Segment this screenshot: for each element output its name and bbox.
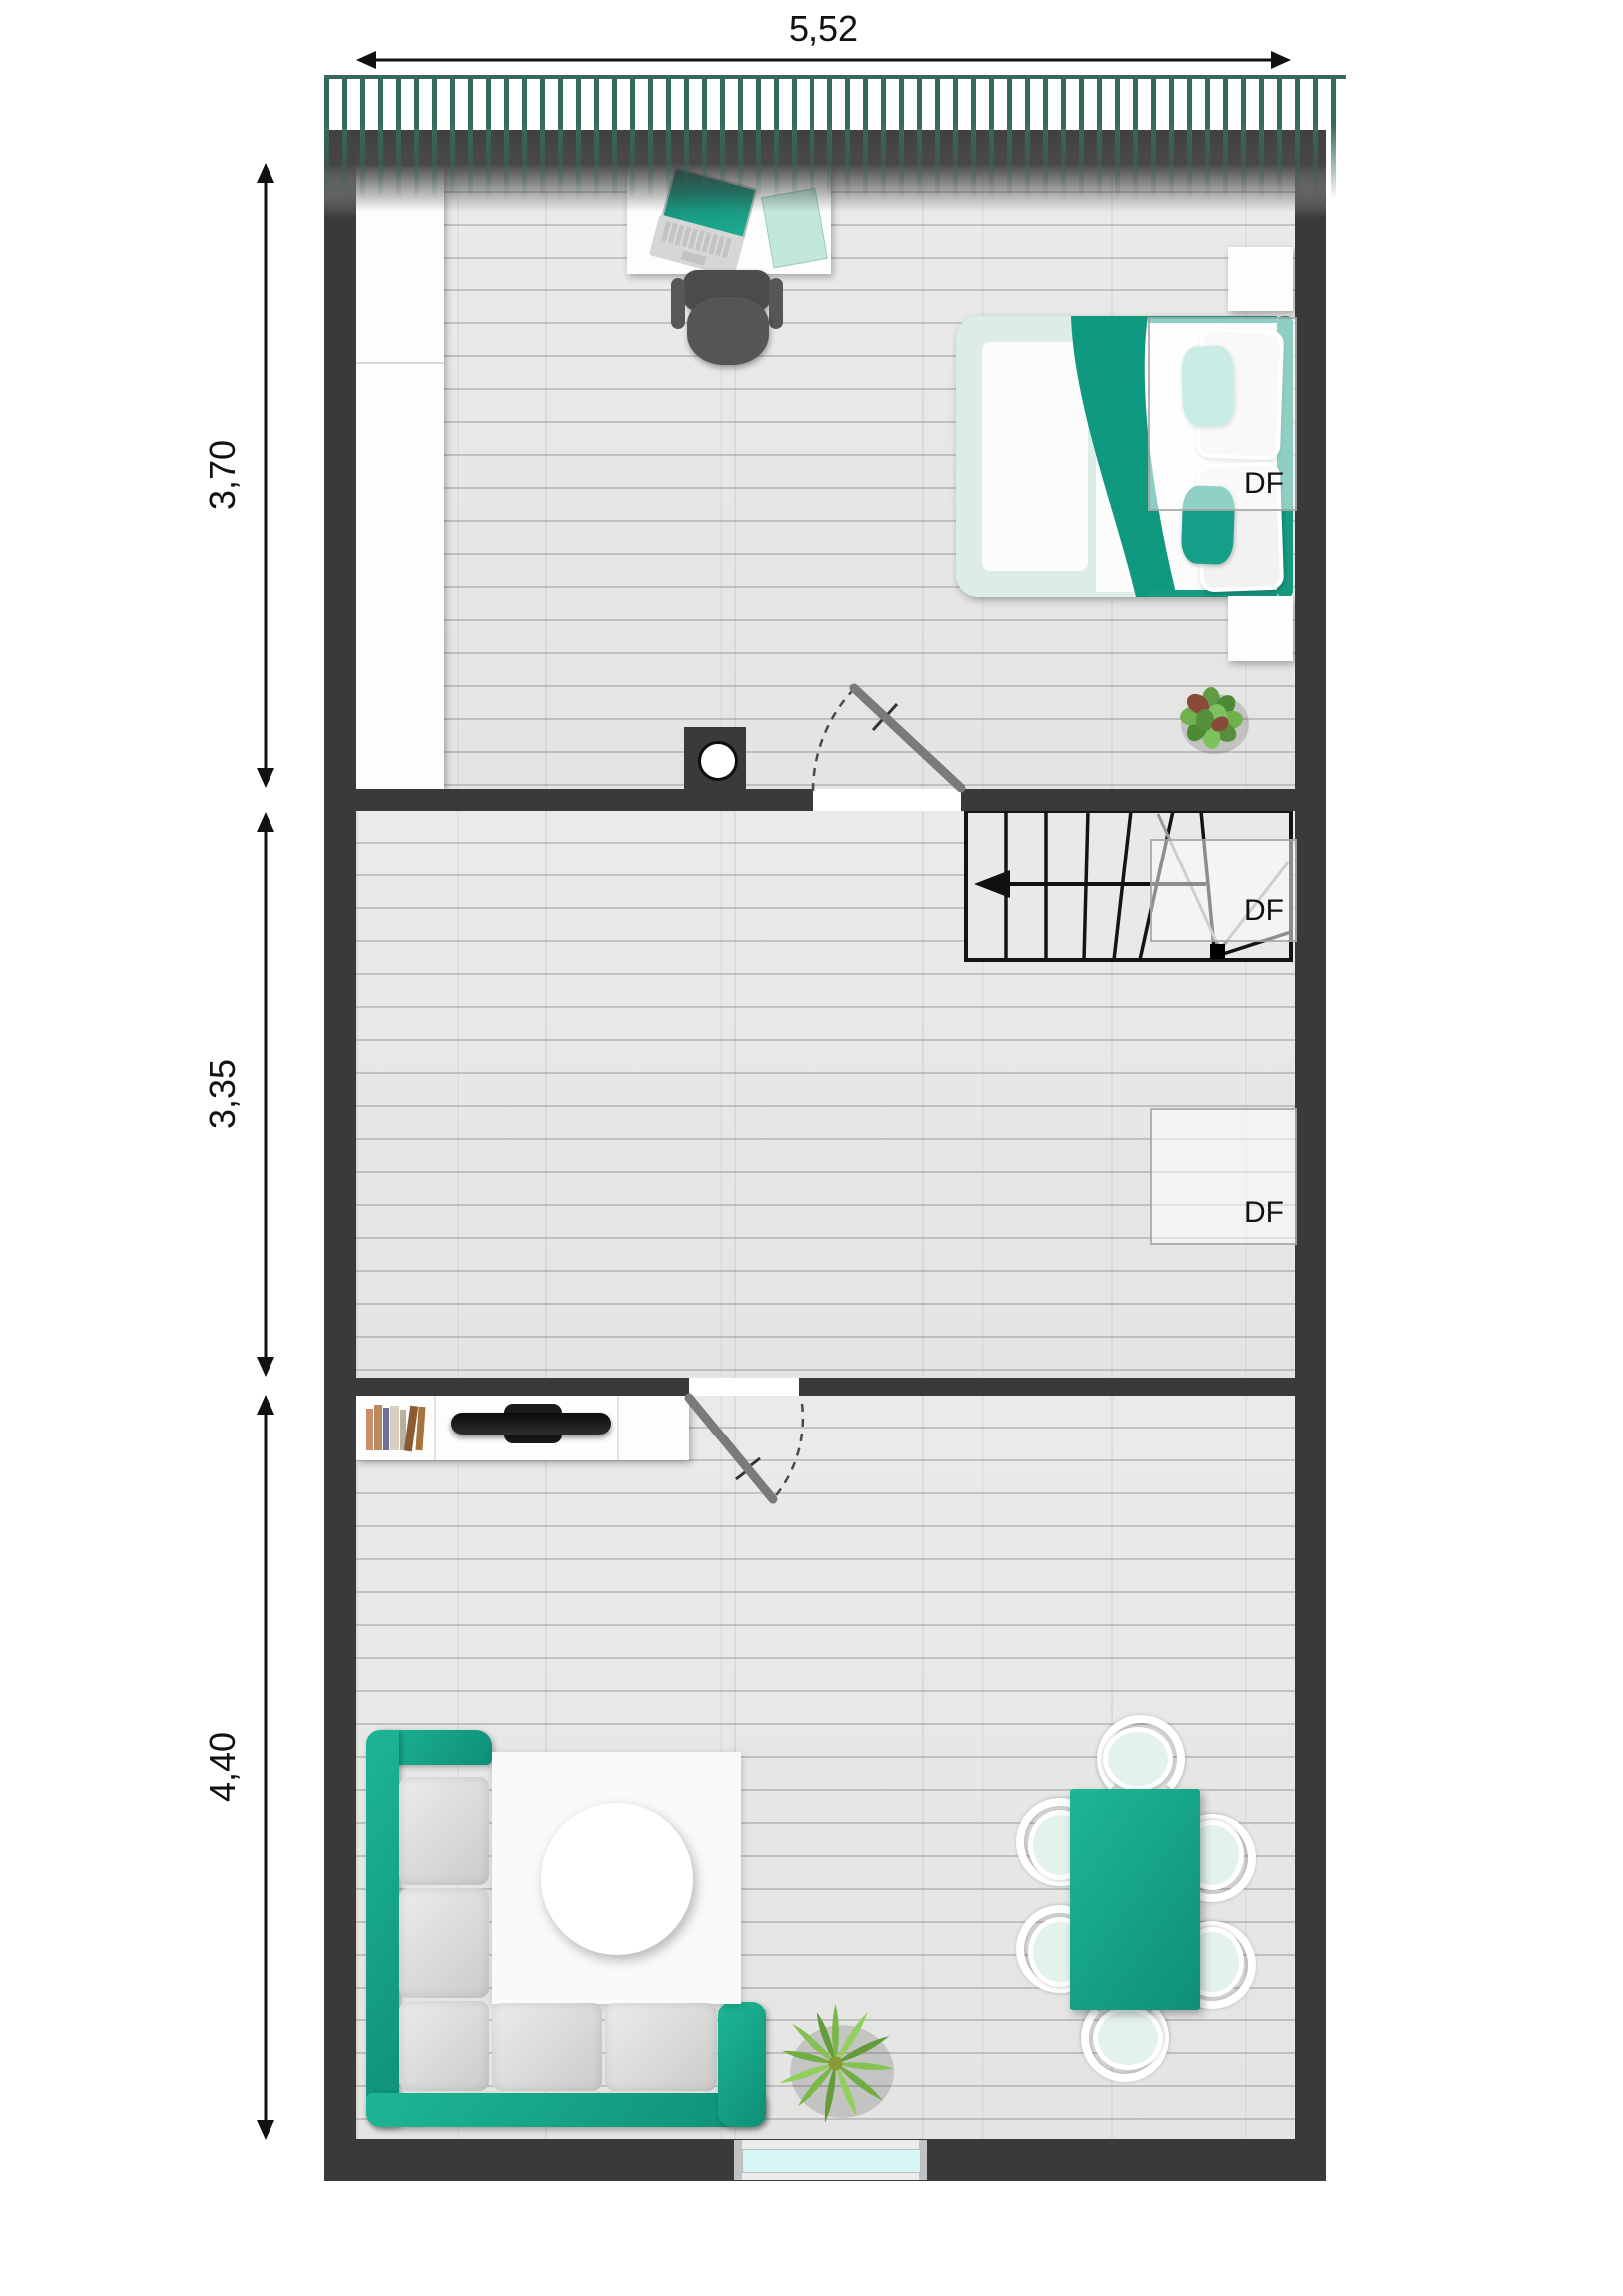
- wall-right: [1295, 140, 1326, 2181]
- dining-chair: [1089, 1711, 1177, 1799]
- nightstand-bottom: [1228, 596, 1293, 661]
- wardrobe: [356, 167, 444, 789]
- window-glass: [742, 2149, 921, 2173]
- office-chair: [671, 270, 783, 369]
- wall-bedroom-hall-right: [961, 789, 1295, 811]
- sideboard: [356, 1396, 689, 1460]
- window: [734, 2140, 927, 2180]
- chimney: [684, 727, 746, 789]
- sofa-front-bottom: [366, 2093, 766, 2127]
- nightstand-top: [1228, 247, 1293, 311]
- sofa-armrest-right: [718, 2002, 766, 2127]
- wardrobe-divider: [356, 362, 444, 364]
- tv-icon: [451, 1404, 616, 1451]
- dimension-bedroom-label: 3,70: [202, 415, 242, 535]
- sofa-cushion: [492, 2003, 602, 2091]
- wall-bedroom-hall-left: [356, 789, 813, 811]
- sofa-cushion: [605, 2003, 717, 2091]
- sofa-cushion: [399, 1777, 489, 1885]
- dining-table: [1070, 1789, 1200, 2010]
- roof-window-strip-edge: [324, 75, 1346, 79]
- skylight-label: DF: [1184, 894, 1284, 928]
- coffee-table: [541, 1803, 693, 1955]
- wall-left: [324, 140, 356, 2181]
- dimension-hall-label: 3,35: [202, 1034, 242, 1154]
- bed-sheet-left: [982, 342, 1088, 571]
- skylight-label: DF: [1184, 467, 1284, 501]
- books: [366, 1405, 428, 1452]
- dimension-living-room-label: 4,40: [202, 1707, 242, 1827]
- wall-hall-living-right: [799, 1378, 1295, 1396]
- dining-chair: [1089, 1999, 1177, 2086]
- chimney-flue: [698, 741, 738, 781]
- floor-plan: DF DF DF: [0, 0, 1623, 2296]
- sofa-back-left: [366, 1730, 399, 2127]
- skylight-label: DF: [1184, 1196, 1284, 1230]
- dimension-width-label: 5,52: [724, 8, 923, 50]
- sofa-cushion: [399, 1888, 489, 1998]
- sofa-cushion: [399, 2001, 489, 2091]
- wall-hall-living-left: [356, 1378, 689, 1396]
- wall-top: [324, 130, 1326, 215]
